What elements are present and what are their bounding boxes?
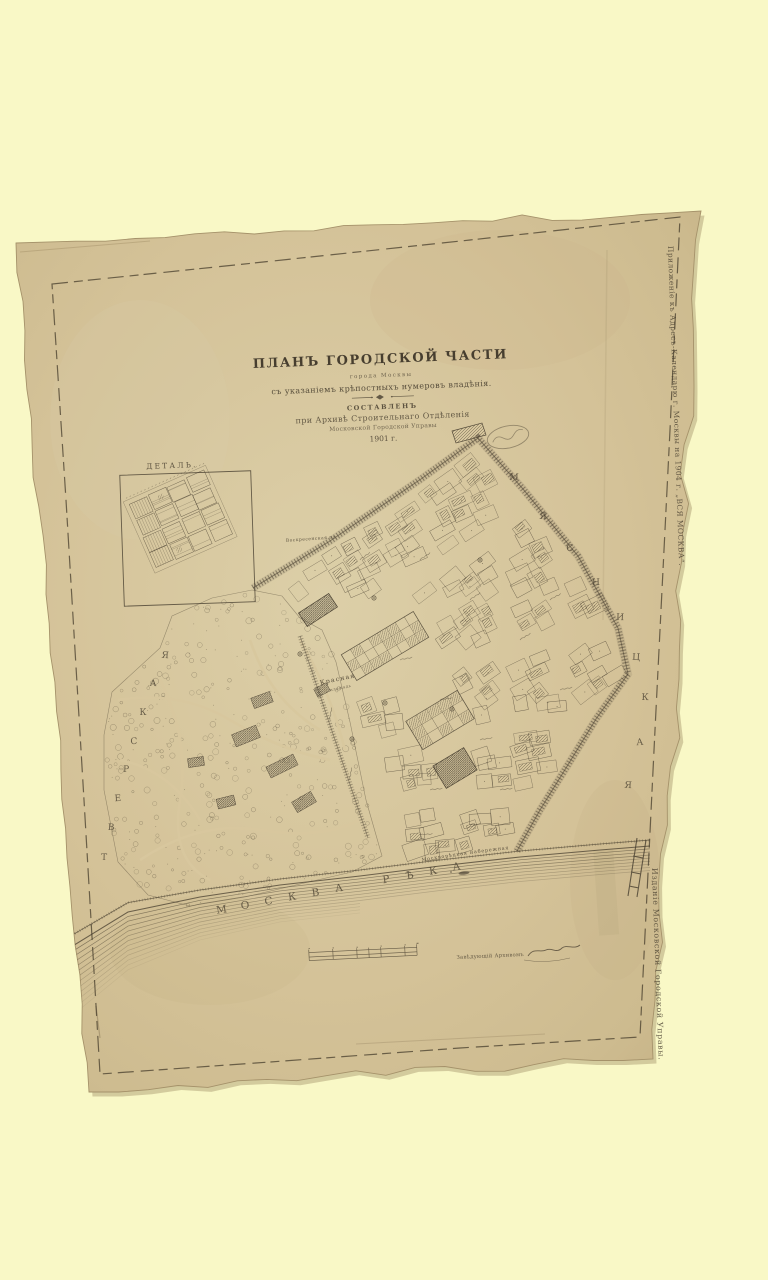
svg-text:А: А xyxy=(334,882,344,895)
svg-text:И: И xyxy=(616,612,624,623)
inset-label: ДЕТАЛЬ. xyxy=(146,460,198,471)
svg-text:Ѣ: Ѣ xyxy=(405,869,415,882)
svg-text:Я: Я xyxy=(624,780,632,791)
scanned-map-page: ДЕТАЛЬ. ПЛАНЪ ГОРОДСКОЙ ЧАСТИ города Мос… xyxy=(0,0,768,1280)
svg-text:Т: Т xyxy=(101,853,107,863)
svg-text:А: А xyxy=(636,737,644,748)
svg-text:Н: Н xyxy=(592,577,600,588)
svg-text:Е: Е xyxy=(114,794,121,804)
svg-text:К: К xyxy=(139,708,146,718)
svg-text:М: М xyxy=(509,472,519,483)
title-year: 1901 г. xyxy=(369,433,397,443)
svg-text:А: А xyxy=(149,679,156,689)
svg-text:Я: Я xyxy=(161,651,169,661)
svg-text:К: К xyxy=(287,891,297,904)
svg-text:В: В xyxy=(108,823,115,833)
svg-text:С: С xyxy=(566,543,574,554)
svg-text:С: С xyxy=(264,895,274,908)
svg-text:А: А xyxy=(452,861,462,874)
map-scan: ДЕТАЛЬ. ПЛАНЪ ГОРОДСКОЙ ЧАСТИ города Мос… xyxy=(0,0,768,1280)
svg-text:Я: Я xyxy=(539,511,547,522)
svg-text:С: С xyxy=(130,737,137,747)
svg-text:К: К xyxy=(428,865,438,878)
svg-text:К: К xyxy=(641,692,648,703)
svg-text:Р: Р xyxy=(123,765,129,775)
svg-text:М: М xyxy=(215,903,228,916)
svg-text:Ц: Ц xyxy=(632,652,641,663)
